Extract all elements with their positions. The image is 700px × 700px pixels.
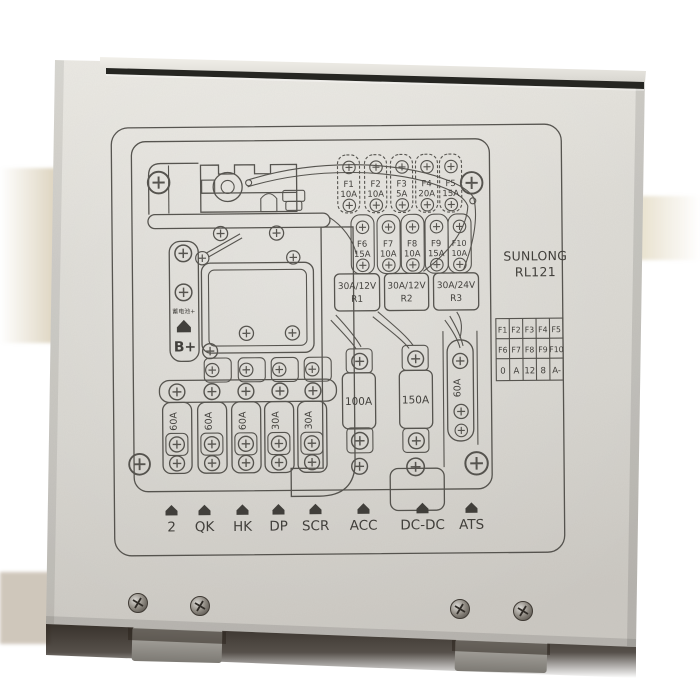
battery-cn-label: 蓄电池+ bbox=[172, 307, 195, 315]
fuse-id: F4 bbox=[421, 179, 431, 189]
bank-fuse-amp: 60A bbox=[169, 412, 180, 431]
table-cell: F5 bbox=[551, 325, 561, 334]
table-cell: F10 bbox=[549, 345, 564, 354]
screw-icon bbox=[514, 602, 533, 621]
box-body bbox=[0, 50, 700, 678]
table-cell: 8 bbox=[540, 366, 546, 376]
fuse-amp: 10A bbox=[451, 249, 467, 258]
fuse-box-photo: 蓄电池+ B+ F1 10A F2 10A bbox=[0, 0, 700, 700]
fuse-amp: 10A bbox=[367, 190, 384, 200]
brand-name: SUNLONG bbox=[503, 248, 567, 264]
table-cell: 12 bbox=[524, 366, 535, 376]
table-cell: F4 bbox=[538, 325, 548, 334]
fuse-id: F7 bbox=[383, 240, 393, 250]
table-cell: F2 bbox=[511, 325, 521, 334]
fuse-amp: 10A bbox=[380, 250, 397, 260]
model-number: RL121 bbox=[515, 264, 556, 279]
bank-fuse-amp: 30A bbox=[271, 411, 282, 430]
table-cell: F6 bbox=[498, 346, 508, 355]
table-cell: F3 bbox=[525, 325, 535, 334]
terminal-label: 2 bbox=[167, 519, 176, 535]
table-cell: F1 bbox=[498, 326, 508, 335]
fuse-id: F8 bbox=[407, 239, 417, 249]
screw-icon bbox=[191, 597, 210, 616]
bank-fuse-amp: 60A bbox=[204, 411, 215, 430]
terminal-label: DC-DC bbox=[400, 517, 445, 533]
main-fuse-amp: 150A bbox=[402, 394, 430, 406]
table-cell: F9 bbox=[538, 345, 548, 354]
relay-id: R1 bbox=[351, 295, 363, 305]
relay-id: R2 bbox=[401, 294, 413, 304]
table-cell: A- bbox=[552, 366, 561, 376]
main-fuse-amp: 60A bbox=[452, 378, 463, 397]
fuse-id: F5 bbox=[445, 179, 455, 189]
fuse-amp: 10A bbox=[404, 249, 421, 259]
relay-rating: 30A/12V bbox=[387, 281, 426, 291]
main-fuse-amp: 100A bbox=[345, 396, 373, 408]
fuse-amp: 5A bbox=[396, 189, 407, 199]
relay-rating: 30A/12V bbox=[338, 282, 377, 292]
terminal-label: ACC bbox=[350, 518, 378, 534]
terminal-label: ATS bbox=[459, 517, 484, 533]
table-cell: 0 bbox=[500, 367, 506, 377]
relay-id: R3 bbox=[450, 294, 462, 304]
fuse-id: F6 bbox=[357, 240, 367, 250]
fuse-amp: 15A bbox=[354, 250, 371, 260]
table-cell: A bbox=[513, 366, 519, 376]
fuse-amp: 10A bbox=[340, 190, 357, 200]
fuse-amp: 15A bbox=[428, 249, 445, 259]
photo-stage: { "panel": { "brand": "SUNLONG", "model"… bbox=[0, 0, 700, 700]
fuse-id: F10 bbox=[452, 239, 467, 248]
terminal-label: QK bbox=[195, 519, 216, 535]
battery-terminal-label: B+ bbox=[174, 339, 197, 355]
fuse-amp: 15A bbox=[442, 189, 459, 199]
fuse-id: F9 bbox=[431, 239, 441, 249]
terminal-label: DP bbox=[269, 518, 288, 534]
relay-rating: 30A/24V bbox=[437, 281, 476, 291]
screw-icon bbox=[129, 594, 148, 613]
bank-fuse-amp: 30A bbox=[304, 410, 315, 429]
table-cell: F7 bbox=[511, 345, 521, 354]
bank-fuse-amp: 60A bbox=[238, 411, 249, 430]
photo-smear-left bbox=[0, 168, 58, 343]
terminal-label: SCR bbox=[302, 518, 330, 534]
fuse-amp: 20A bbox=[418, 189, 435, 199]
table-cell: F8 bbox=[525, 345, 535, 354]
screw-icon bbox=[451, 600, 470, 619]
terminal-2: 2 bbox=[165, 505, 177, 536]
fuse-id: F2 bbox=[370, 180, 380, 190]
terminal-label: HK bbox=[233, 519, 253, 535]
fuse-id: F3 bbox=[396, 179, 406, 189]
photo-smear-bottom-left bbox=[0, 572, 50, 644]
fuse-id: F1 bbox=[343, 180, 353, 190]
